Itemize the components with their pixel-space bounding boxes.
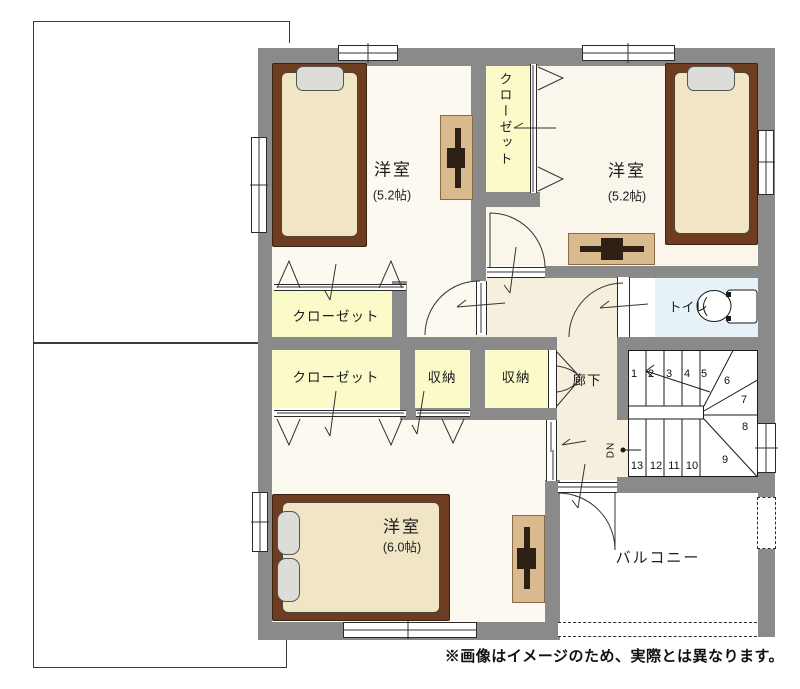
window-right-bedroom xyxy=(758,130,774,195)
door-jamb-toilet xyxy=(617,277,630,337)
label-bedroom-top-right: 洋室 xyxy=(608,157,646,182)
wall-bottomroom-right xyxy=(545,480,560,622)
bed-bottom-pillow-2 xyxy=(277,558,300,602)
stair-step-7: 7 xyxy=(741,394,747,406)
label-closet-lower: クローゼット xyxy=(293,366,380,386)
wall-mid-band xyxy=(258,337,557,350)
floor-plan: 洋室 (5.2帖) 洋室 (5.2帖) 洋室 (6.0帖) クローゼット クロー… xyxy=(0,0,800,689)
stair-step-3: 3 xyxy=(666,368,672,380)
label-bedroom-bottom-size: (6.0帖) xyxy=(383,537,421,556)
wall-balcony-top-right xyxy=(617,477,758,493)
sliding-door-bedroom-bottom xyxy=(546,420,557,481)
window-right-stairs xyxy=(757,423,776,473)
stair-step-9: 9 xyxy=(722,454,728,466)
stair-step-2: 2 xyxy=(648,368,654,380)
label-closet-upper: クローゼット xyxy=(293,305,380,325)
door-jamb-bedroom-top-left xyxy=(476,281,487,335)
stair-down-label: DN xyxy=(606,442,617,458)
bifold-track-closet-upper xyxy=(274,284,406,291)
bifold-track-closet-lower xyxy=(274,410,406,417)
label-storage-right: 収納 xyxy=(502,366,531,386)
desk-chair-1 xyxy=(447,148,465,168)
bed-top-right-pillow xyxy=(687,66,735,91)
footprint-outline-lower xyxy=(33,343,287,668)
wall-stairs-top xyxy=(617,337,758,350)
bed-bottom-pillow-1 xyxy=(277,511,300,555)
bed-top-left-pillow xyxy=(296,66,344,91)
label-bedroom-top-left-size: (5.2帖) xyxy=(373,185,411,204)
stair-step-8: 8 xyxy=(742,421,748,433)
stair-step-1: 1 xyxy=(631,368,637,380)
bifold-track-storage-left xyxy=(416,410,470,417)
window-top-left xyxy=(338,45,398,61)
window-top-right xyxy=(582,45,675,61)
stair-step-6: 6 xyxy=(724,375,730,387)
stair-step-10: 10 xyxy=(686,460,698,472)
stair-step-13: 13 xyxy=(631,460,643,472)
wall-storage-divider xyxy=(470,348,485,408)
bed-top-right-mattress xyxy=(674,72,750,234)
bifold-track-closet-vertical xyxy=(530,64,537,193)
wall-stairs-left xyxy=(617,342,628,420)
door-track-balcony xyxy=(558,482,617,493)
label-hallway: 廊下 xyxy=(573,369,602,389)
wall-closet-right-lower xyxy=(400,350,415,408)
wall-rooms-divider xyxy=(471,63,486,281)
disclaimer-note: ※画像はイメージのため、実際とは異なります。 xyxy=(445,645,784,666)
floor-hall-upper xyxy=(476,278,557,340)
stair-step-11: 11 xyxy=(668,460,679,472)
floor-bedroom-top-left-lower xyxy=(407,283,476,337)
desk-chair-2 xyxy=(601,238,623,260)
label-bedroom-bottom: 洋室 xyxy=(383,513,421,538)
desk-chair-3 xyxy=(517,548,536,569)
stair-step-5: 5 xyxy=(701,368,707,380)
label-closet-vertical: クローゼット xyxy=(496,72,515,168)
label-bedroom-top-left: 洋室 xyxy=(374,156,412,181)
label-storage-left: 収納 xyxy=(428,366,457,386)
label-bedroom-top-right-size: (5.2帖) xyxy=(608,186,646,205)
balcony-railing xyxy=(558,622,757,637)
floor-toilet-entry xyxy=(630,277,655,337)
window-bottom xyxy=(343,622,477,638)
bed-top-left-mattress xyxy=(281,72,358,237)
floor-under-closet xyxy=(486,207,537,266)
stair-step-4: 4 xyxy=(684,368,690,380)
balcony-side-opening xyxy=(757,497,776,549)
wall-closet-bottom xyxy=(471,192,540,207)
wall-above-toilet xyxy=(545,266,758,278)
label-balcony: バルコニー xyxy=(616,547,701,568)
label-toilet: トイレ xyxy=(668,297,707,316)
stair-step-12: 12 xyxy=(650,460,662,472)
window-left-lower xyxy=(252,492,268,552)
door-track-bedroom-top-right xyxy=(487,267,545,278)
door-jamb-storage-right xyxy=(548,350,557,408)
window-left-upper xyxy=(251,137,267,233)
